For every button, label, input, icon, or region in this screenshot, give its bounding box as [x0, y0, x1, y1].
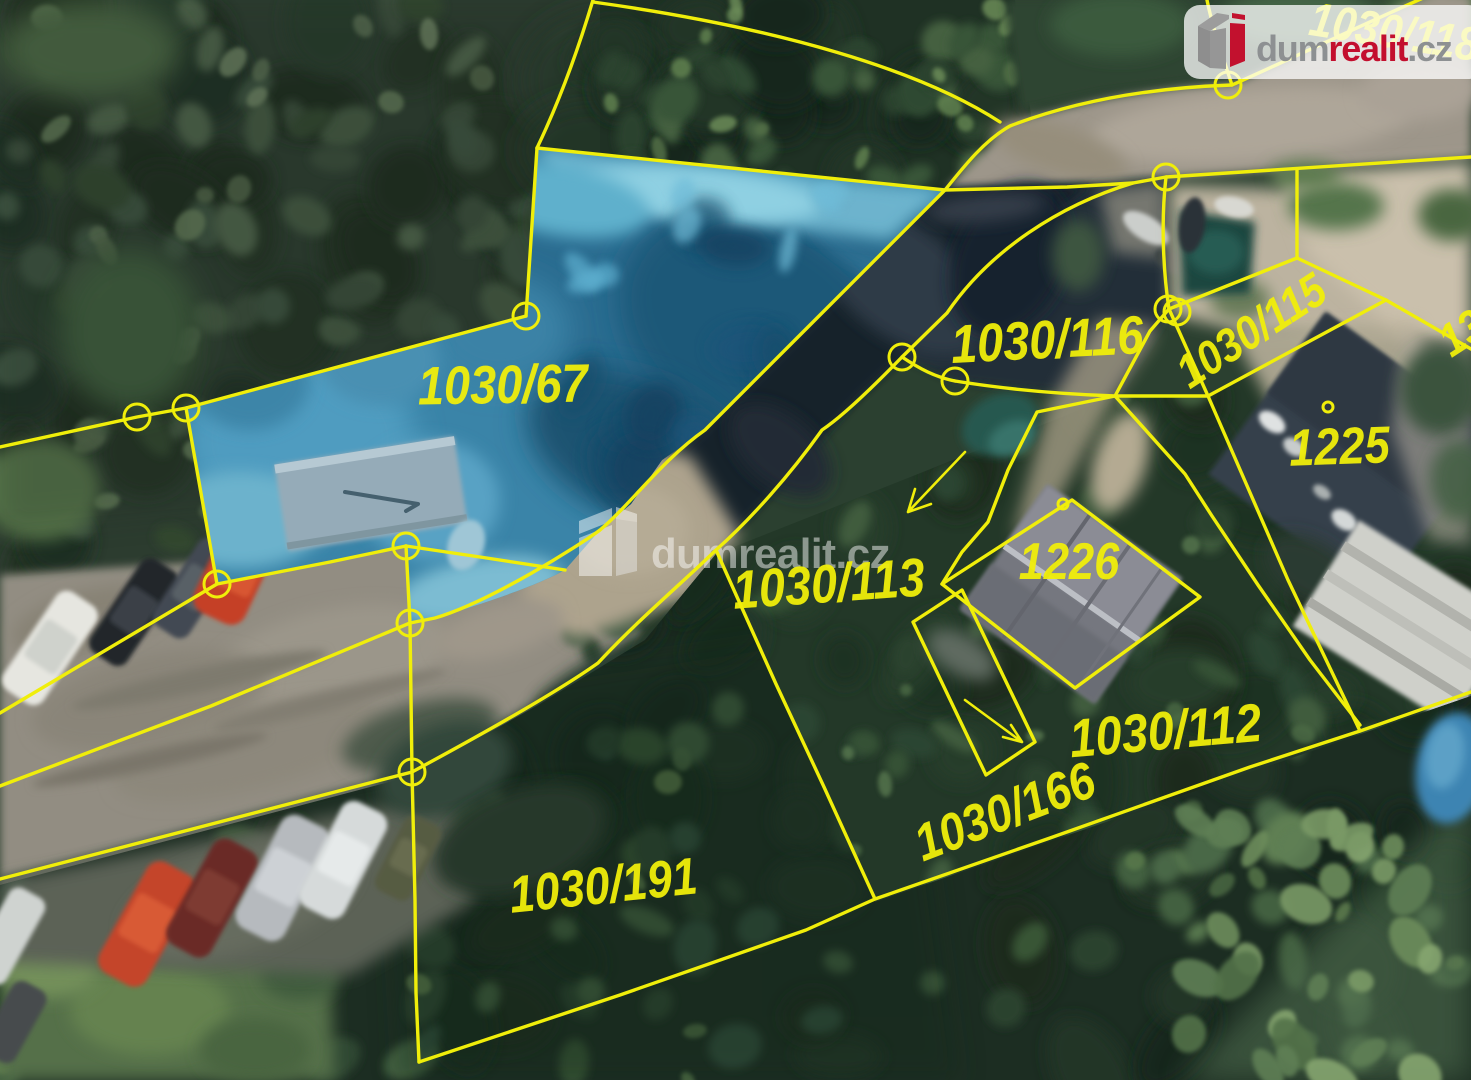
svg-text:1030/116: 1030/116: [949, 304, 1145, 375]
svg-text:dumrealit.cz: dumrealit.cz: [1256, 28, 1452, 69]
svg-text:1225: 1225: [1288, 416, 1391, 477]
svg-text:1030/67: 1030/67: [417, 352, 590, 416]
svg-text:1226: 1226: [1019, 533, 1120, 591]
